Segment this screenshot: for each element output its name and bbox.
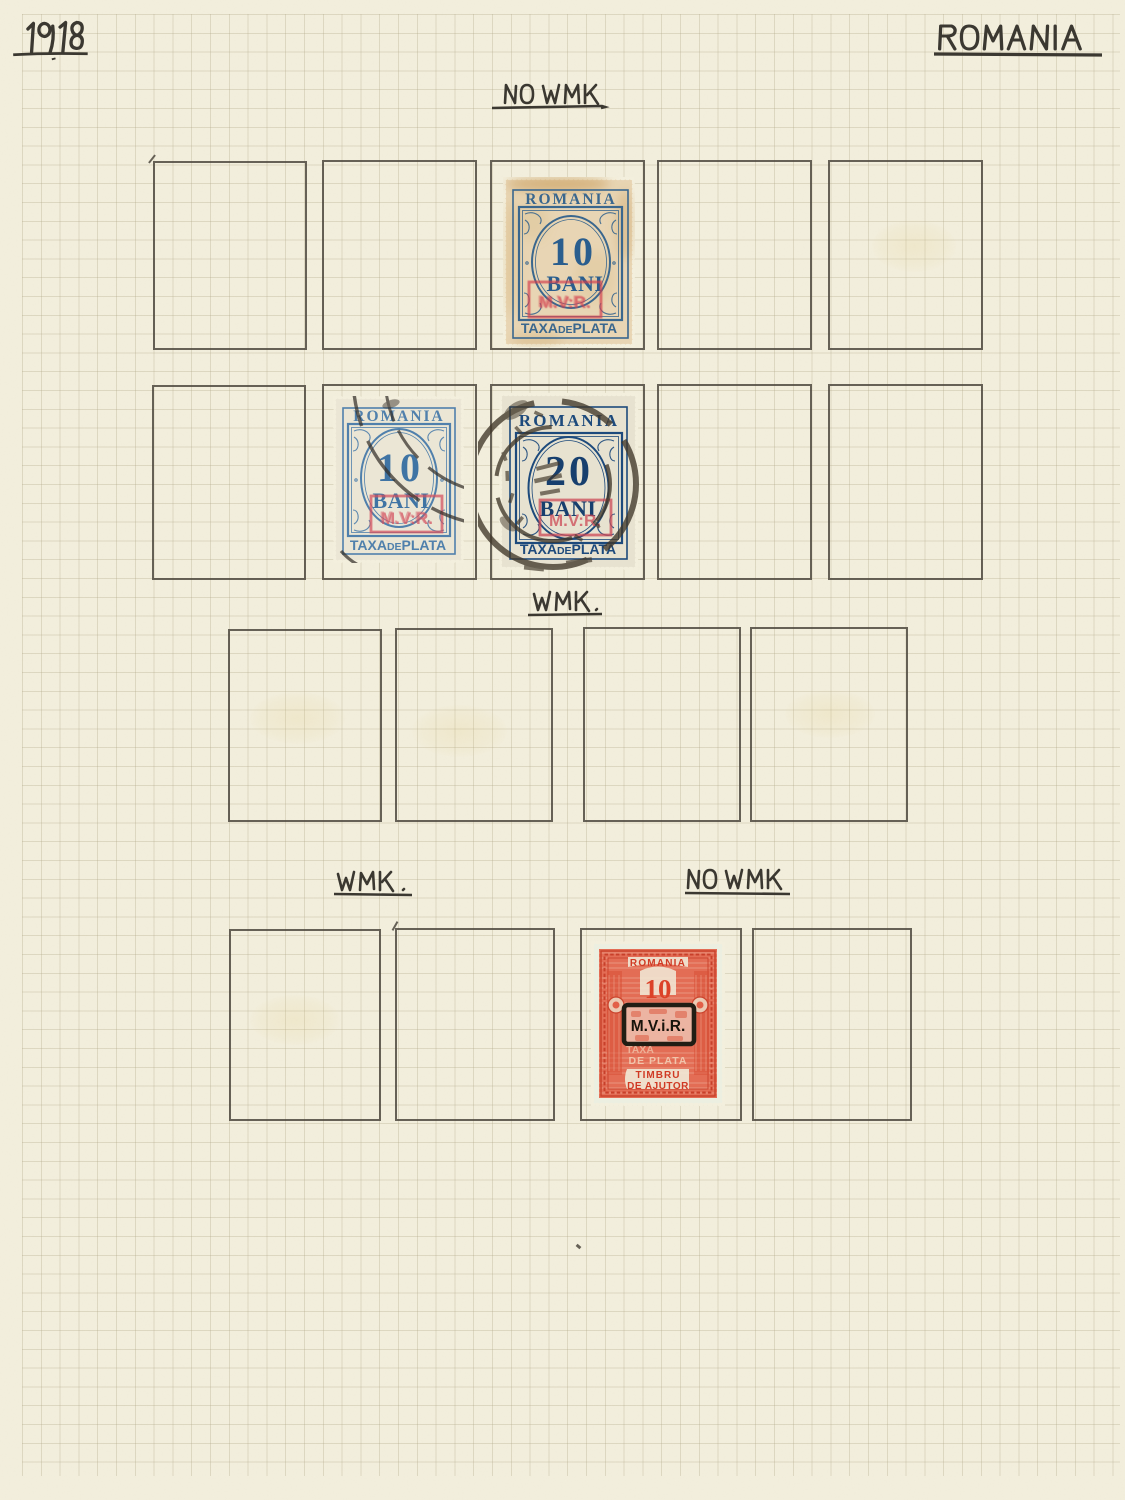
svg-text:M.V:R.: M.V:R. xyxy=(538,292,590,311)
svg-text:10: 10 xyxy=(550,229,596,274)
svg-text:DE AJUTOR: DE AJUTOR xyxy=(627,1081,689,1092)
svg-text:ROMANIA: ROMANIA xyxy=(353,408,445,425)
svg-text:20: 20 xyxy=(545,449,593,495)
svg-text:M.V:R.: M.V:R. xyxy=(380,508,432,527)
svg-text:ROMANIA: ROMANIA xyxy=(525,191,617,208)
svg-text:TIMBRU: TIMBRU xyxy=(636,1070,681,1081)
svg-text:10: 10 xyxy=(645,974,672,1004)
svg-text:M.V:R.: M.V:R. xyxy=(549,511,601,530)
svg-text:M.V.i.R.: M.V.i.R. xyxy=(631,1018,686,1035)
svg-text:DE PLATA: DE PLATA xyxy=(629,1055,688,1067)
